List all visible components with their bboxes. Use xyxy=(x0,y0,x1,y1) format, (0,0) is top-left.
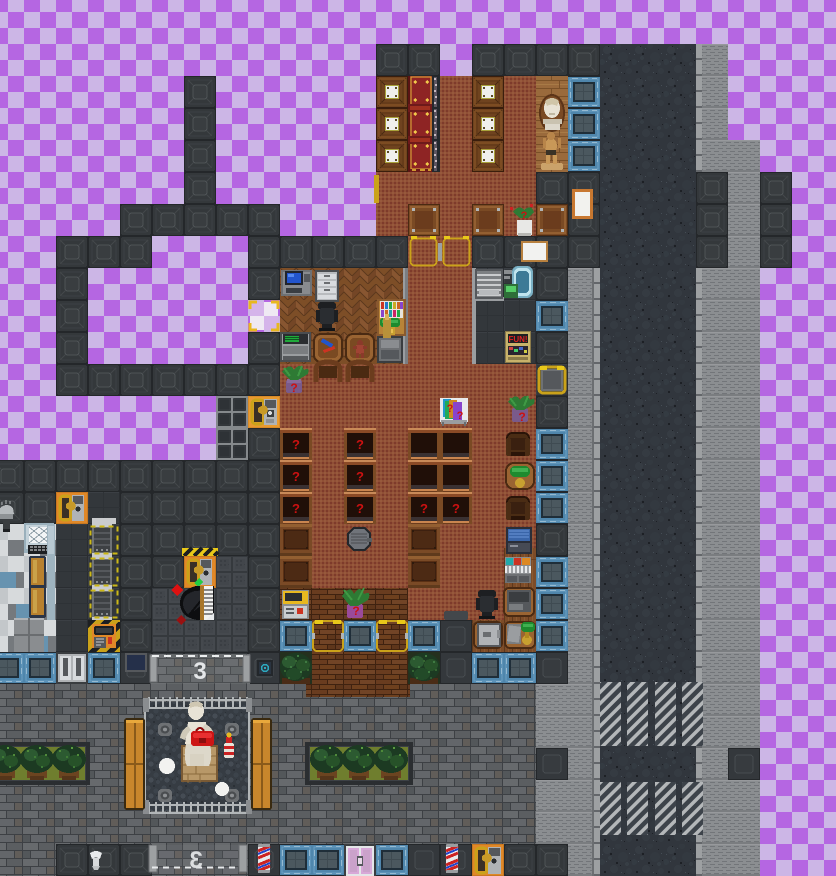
svg-text:?: ? xyxy=(457,410,464,422)
svg-text:?: ? xyxy=(290,381,297,395)
svg-text:?: ? xyxy=(518,410,525,424)
svg-text:FUN!: FUN! xyxy=(508,335,527,344)
svg-text:3: 3 xyxy=(193,658,206,685)
svg-text:3: 3 xyxy=(189,847,202,874)
svg-text:?: ? xyxy=(521,210,528,222)
svg-text:?: ? xyxy=(352,604,359,618)
svg-text:?: ? xyxy=(447,403,454,415)
